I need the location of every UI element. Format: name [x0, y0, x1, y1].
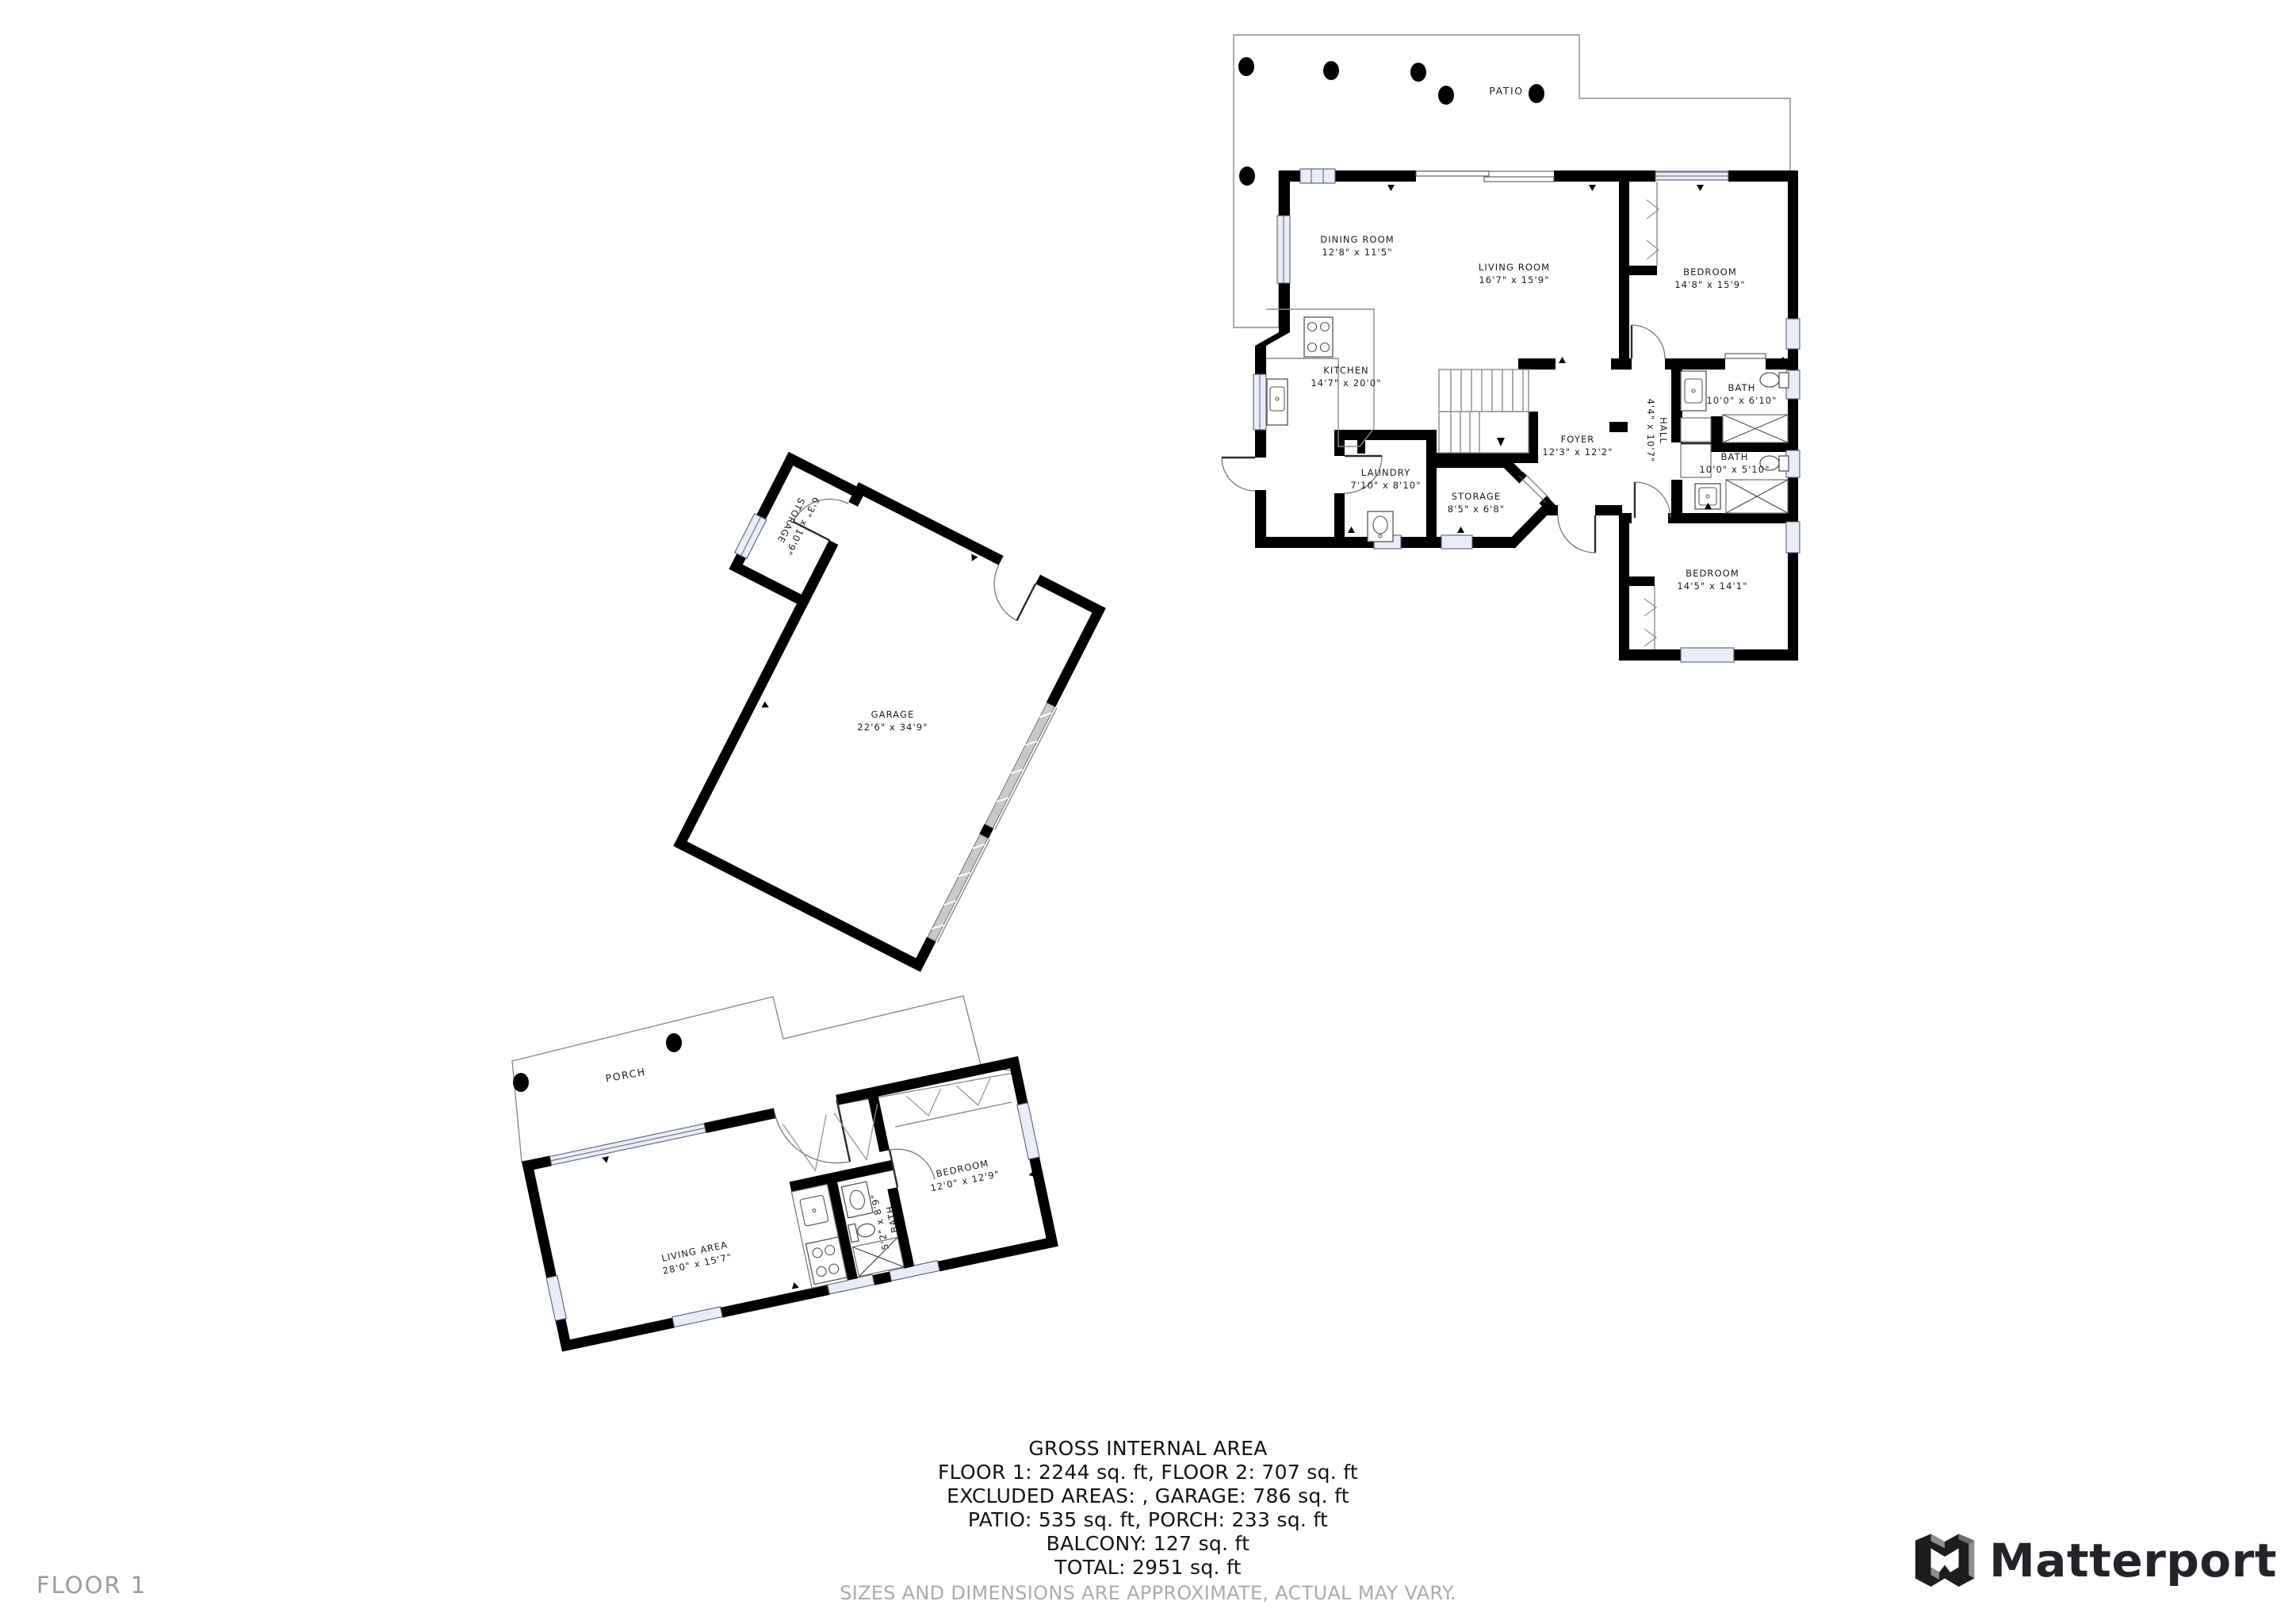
- svg-text:16'7" x 15'9": 16'7" x 15'9": [1479, 274, 1549, 285]
- matterport-wordmark: Matterport: [1989, 1534, 2277, 1588]
- svg-text:14'7" x 20'0": 14'7" x 20'0": [1311, 377, 1381, 389]
- svg-text:4'4" x 10'7": 4'4" x 10'7": [1645, 399, 1656, 463]
- svg-text:14'8" x 15'9": 14'8" x 15'9": [1674, 279, 1745, 290]
- room-label-patio: PATIO: [1489, 85, 1523, 97]
- room-label-living: LIVING ROOM 16'7" x 15'9": [1479, 262, 1550, 285]
- room-label-garage: GARAGE 22'6" x 34'9": [857, 709, 928, 733]
- room-label-bedroom2: BEDROOM 14'5" x 14'1": [1677, 568, 1747, 592]
- room-label-kitchen: KITCHEN 14'7" x 20'0": [1311, 365, 1381, 389]
- unit-plan: LIVING AREA 28'0" x 15'7" BEDROOM 12'0" …: [521, 1055, 1059, 1353]
- room-label-dining: DINING ROOM 12'8" x 11'5": [1320, 234, 1395, 258]
- svg-text:LAUNDRY: LAUNDRY: [1361, 467, 1410, 478]
- room-label-foyer: FOYER 12'3" x 12'2": [1542, 434, 1613, 458]
- svg-text:12'3" x 12'2": 12'3" x 12'2": [1542, 446, 1613, 458]
- room-label-bedroom1: BEDROOM 14'8" x 15'9": [1674, 266, 1745, 290]
- svg-text:KITCHEN: KITCHEN: [1323, 365, 1369, 376]
- svg-text:BATH: BATH: [1728, 382, 1756, 393]
- svg-text:STORAGE: STORAGE: [1452, 491, 1501, 502]
- porch-label: PORCH: [605, 1066, 647, 1085]
- matterport-logo: Matterport: [1913, 1529, 2277, 1592]
- excluded-areas-line: EXCLUDED AREAS: , GARAGE: 786 sq. ft: [0, 1484, 2296, 1508]
- svg-text:7'10" x 8'10": 7'10" x 8'10": [1350, 480, 1421, 491]
- room-label-hall: HALL 4'4" x 10'7": [1645, 399, 1669, 463]
- svg-text:22'6" x 34'9": 22'6" x 34'9": [857, 722, 928, 733]
- svg-text:LIVING ROOM: LIVING ROOM: [1479, 262, 1550, 273]
- main-doors: [1222, 325, 1711, 553]
- matterport-mark-icon: [1913, 1529, 1976, 1592]
- svg-text:HALL: HALL: [1658, 417, 1669, 444]
- svg-text:10'0" x 6'10": 10'0" x 6'10": [1706, 395, 1777, 406]
- patio-label: PATIO: [1489, 85, 1523, 97]
- room-label-laundry: LAUNDRY 7'10" x 8'10": [1350, 467, 1421, 491]
- floor-plan-canvas: PATIO DINING ROOM 12'8" x 11'5" LIVING R…: [0, 0, 2296, 1624]
- svg-text:DINING ROOM: DINING ROOM: [1320, 234, 1395, 245]
- garage-plan: STORAGE 6'3" x 10'9": [603, 446, 1108, 973]
- stairs: [1439, 370, 1529, 453]
- floor-areas-line: FLOOR 1: 2244 sq. ft, FLOOR 2: 707 sq. f…: [0, 1461, 2296, 1484]
- floor-indicator: FLOOR 1: [36, 1572, 147, 1599]
- gross-internal-area-title: GROSS INTERNAL AREA: [0, 1437, 2296, 1461]
- floor-plan-page: PATIO DINING ROOM 12'8" x 11'5" LIVING R…: [0, 0, 2296, 1624]
- room-label-floor2-bedroom: BEDROOM 12'0" x 12'9": [927, 1155, 1001, 1193]
- svg-text:FOYER: FOYER: [1561, 434, 1595, 445]
- svg-text:BEDROOM: BEDROOM: [1686, 568, 1739, 579]
- main-floor-plan: PATIO DINING ROOM 12'8" x 11'5" LIVING R…: [1222, 35, 1800, 662]
- svg-text:12'8" x 11'5": 12'8" x 11'5": [1322, 247, 1392, 258]
- svg-text:8'5" x 6'8": 8'5" x 6'8": [1448, 504, 1505, 515]
- room-label-living-area: LIVING AREA 28'0" x 15'7": [659, 1239, 733, 1277]
- svg-text:BATH: BATH: [1721, 451, 1749, 462]
- svg-text:14'5" x 14'1": 14'5" x 14'1": [1677, 580, 1747, 592]
- svg-text:GARAGE: GARAGE: [871, 709, 915, 720]
- svg-text:BEDROOM: BEDROOM: [1683, 266, 1737, 278]
- svg-text:10'0" x 5'10": 10'0" x 5'10": [1699, 464, 1770, 475]
- room-label-storage: STORAGE 8'5" x 6'8": [1448, 491, 1505, 515]
